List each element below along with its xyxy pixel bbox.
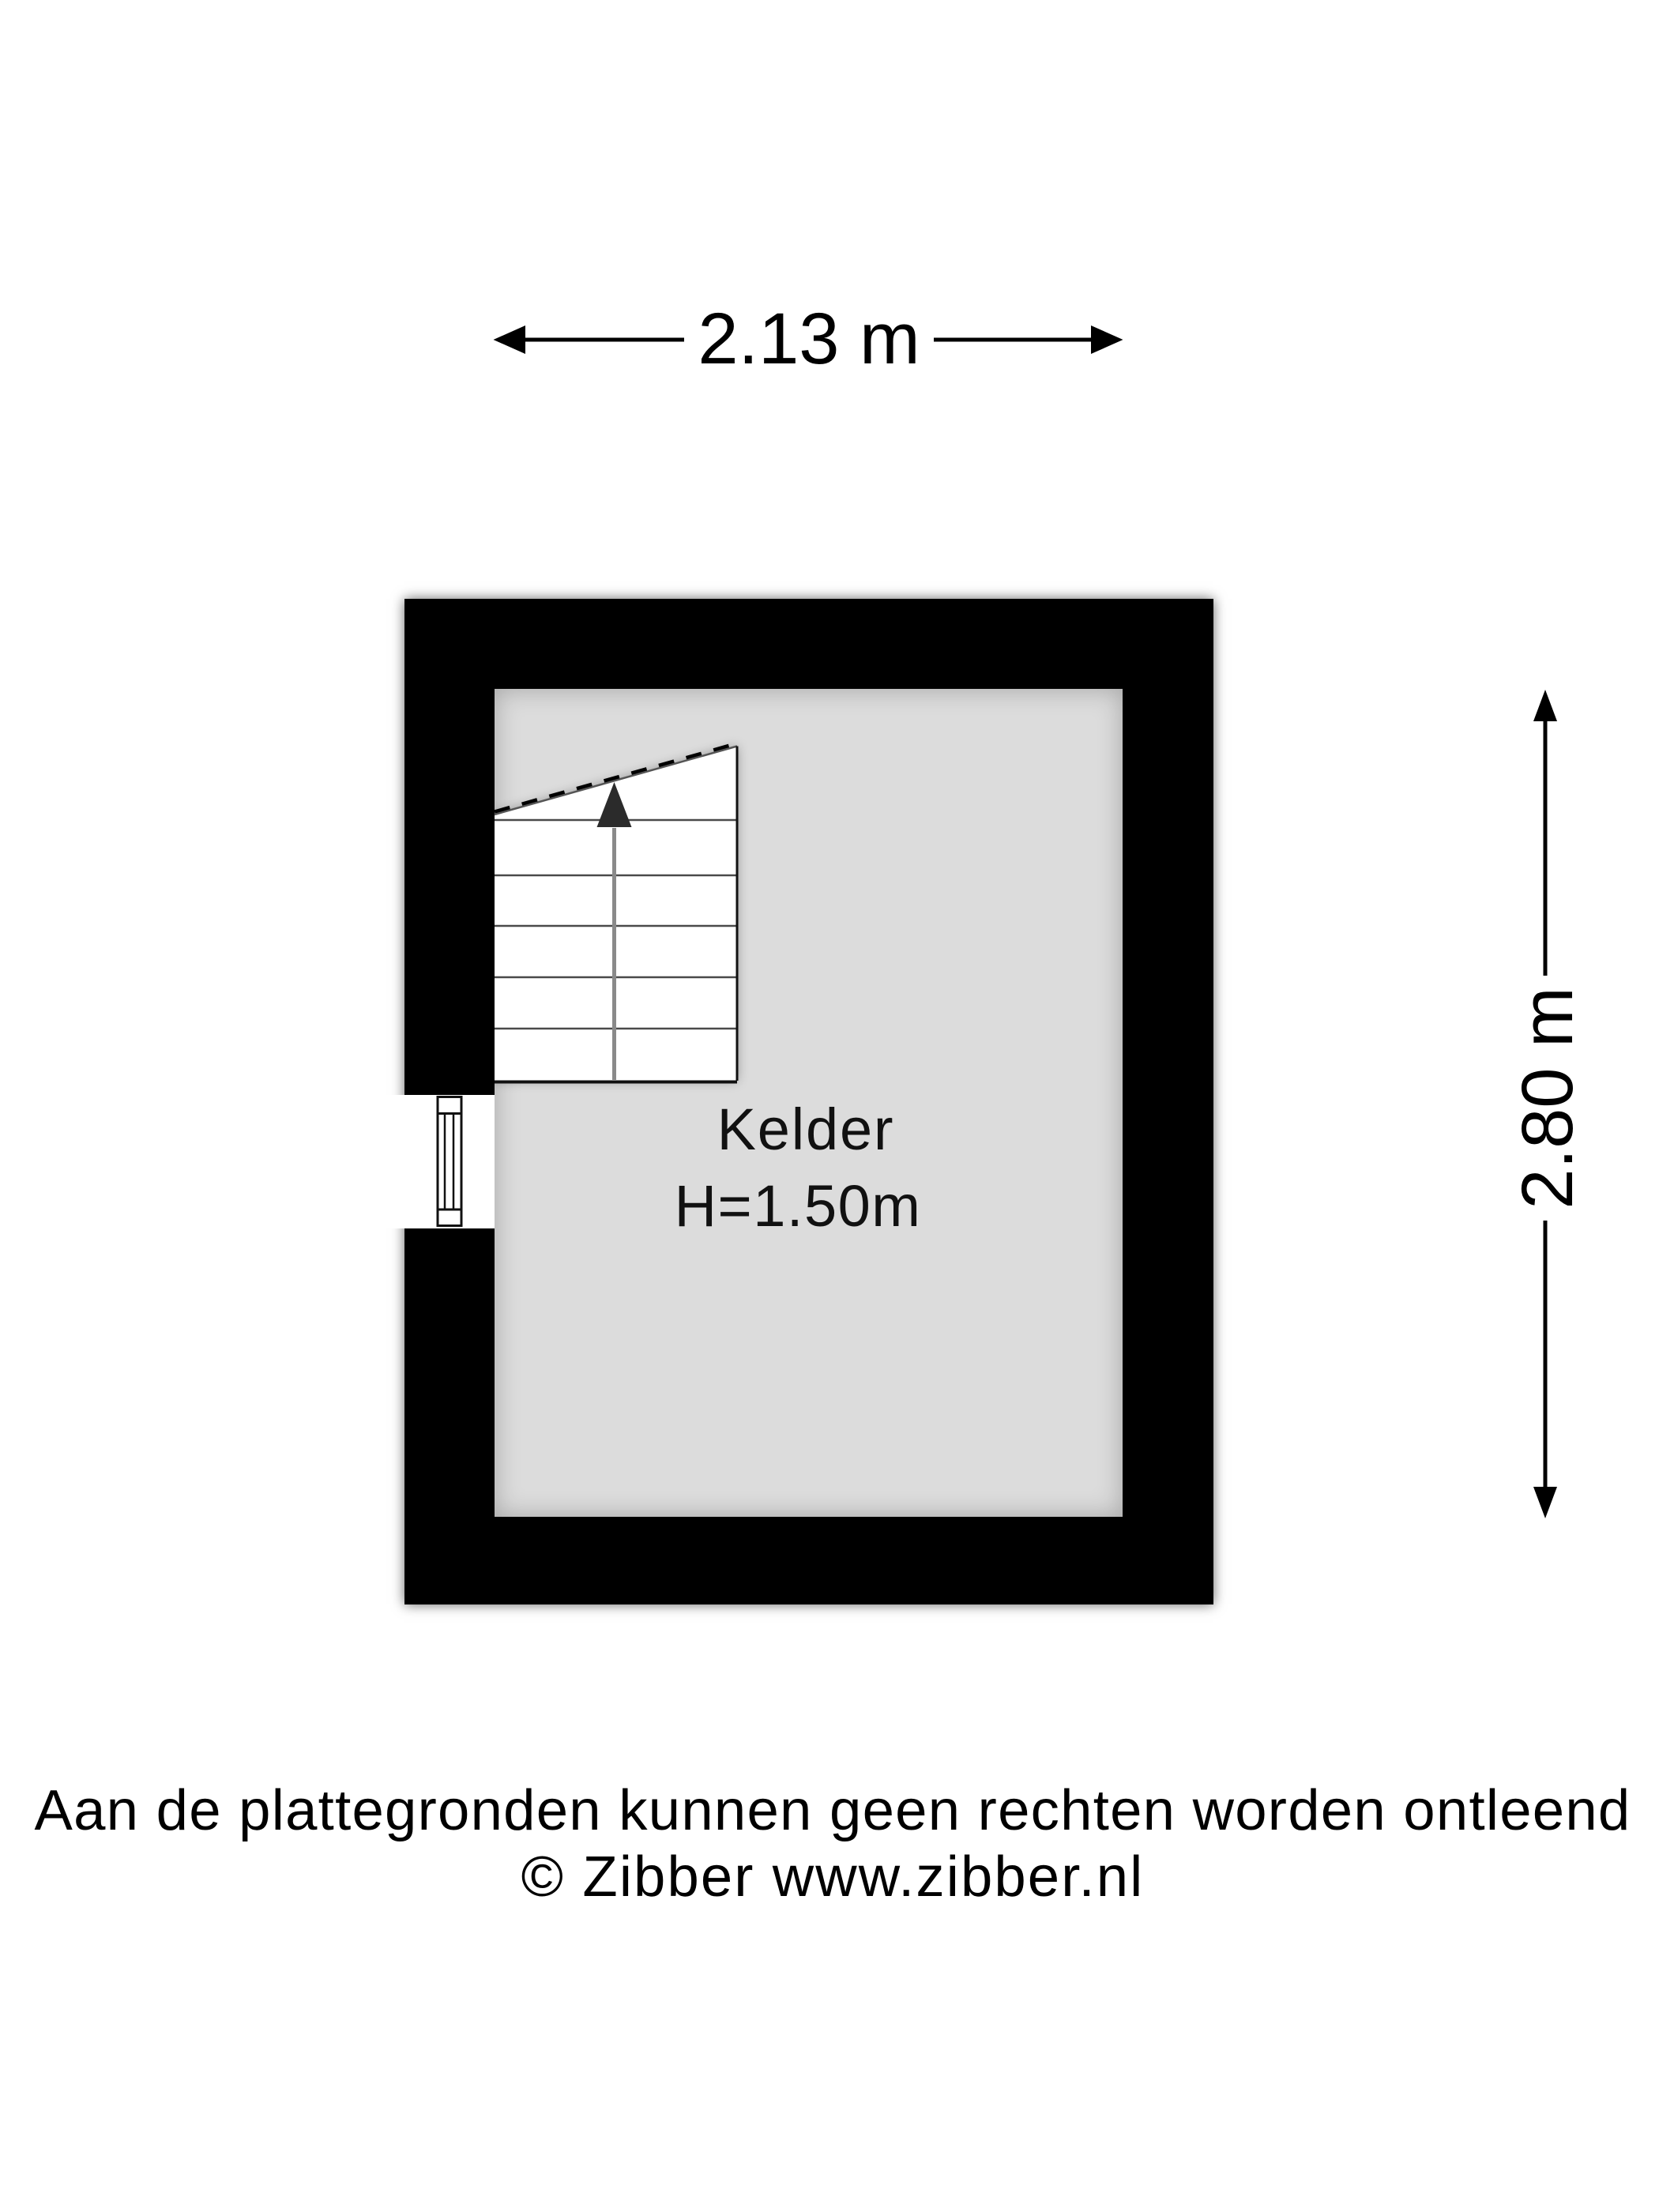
svg-text:H=1.50m: H=1.50m	[675, 1173, 922, 1239]
svg-text:Aan de plattegronden kunnen ge: Aan de plattegronden kunnen geen rechten…	[35, 1778, 1631, 1842]
svg-text:Kelder: Kelder	[717, 1097, 895, 1162]
svg-text:2.80 m: 2.80 m	[1507, 987, 1588, 1209]
svg-text:2.13 m: 2.13 m	[698, 299, 920, 379]
svg-text:© Zibber www.zibber.nl: © Zibber www.zibber.nl	[521, 1845, 1145, 1909]
